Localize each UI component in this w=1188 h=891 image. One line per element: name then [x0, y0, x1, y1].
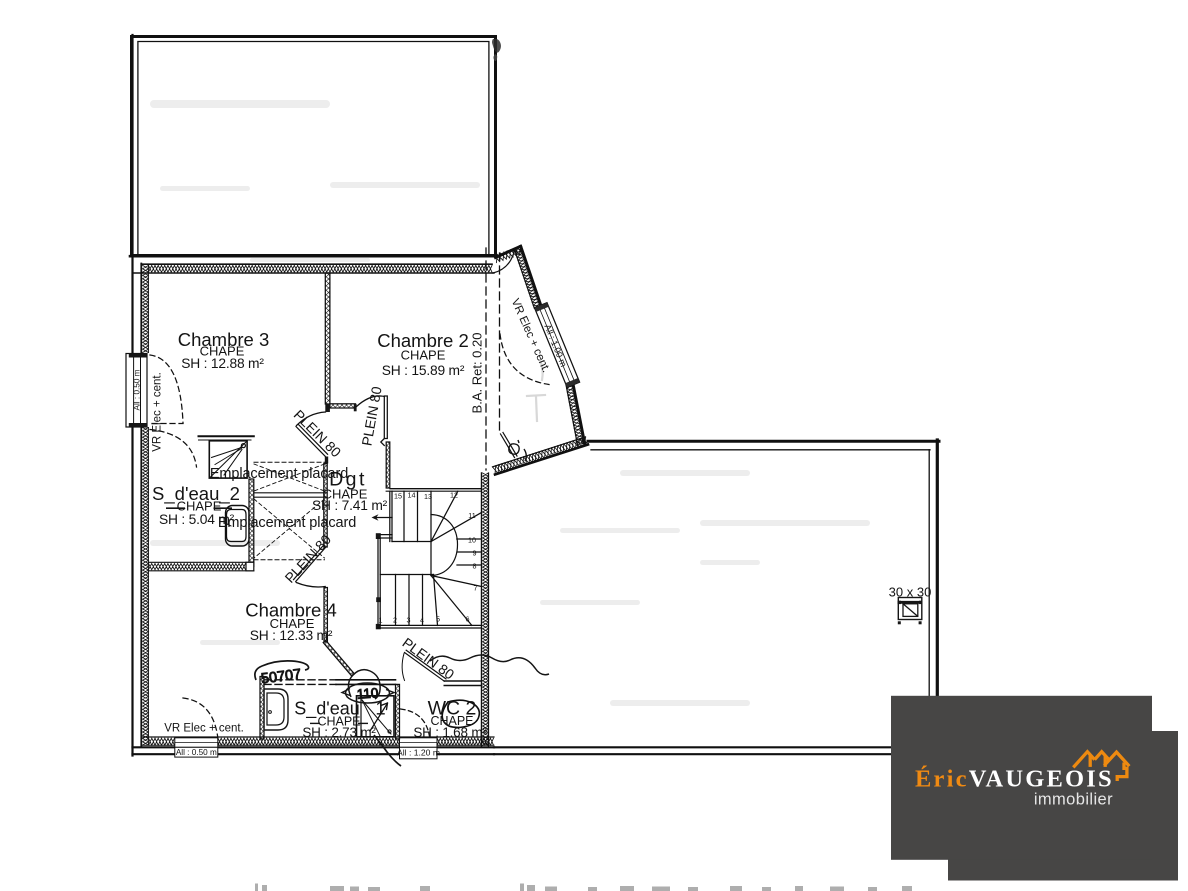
svg-text:5: 5: [436, 615, 440, 624]
svg-text:110: 110: [356, 685, 379, 701]
svg-text:13: 13: [424, 492, 432, 501]
svg-text:14: 14: [408, 491, 416, 500]
svg-text:10: 10: [468, 536, 476, 545]
svg-text:SH : 7.41 m²: SH : 7.41 m²: [312, 498, 388, 513]
svg-text:12: 12: [450, 491, 458, 500]
svg-text:All : 1.20 m: All : 1.20 m: [397, 748, 440, 758]
svg-text:SH : 15.89 m²: SH : 15.89 m²: [382, 363, 465, 378]
svg-text:1: 1: [379, 616, 383, 625]
svg-text:CHAPE: CHAPE: [401, 347, 446, 362]
svg-text:6: 6: [466, 615, 470, 624]
svg-text:9: 9: [473, 549, 477, 558]
svg-text:All : 0.50 m: All : 0.50 m: [176, 748, 217, 757]
svg-text:ÉricVAUGEOIS: ÉricVAUGEOIS: [915, 765, 1114, 793]
svg-text:SH : 12.33 m²: SH : 12.33 m²: [250, 628, 333, 643]
svg-text:Emplacement placard: Emplacement placard: [210, 466, 348, 482]
svg-text:VR Elec + cent.: VR Elec + cent.: [164, 723, 244, 735]
svg-text:Emplacement placard: Emplacement placard: [218, 515, 356, 531]
svg-text:B.A. Ret: 0.20: B.A. Ret: 0.20: [470, 333, 485, 414]
svg-text:15: 15: [394, 492, 402, 501]
svg-text:7: 7: [474, 584, 478, 593]
svg-text:11: 11: [468, 511, 475, 520]
svg-text:SH : 2.73 m²: SH : 2.73 m²: [302, 725, 376, 740]
svg-text:3: 3: [407, 616, 411, 625]
svg-text:2: 2: [393, 616, 397, 625]
svg-text:immobilier: immobilier: [1034, 791, 1113, 809]
svg-text:SH : 12.88 m²: SH : 12.88 m²: [181, 356, 264, 371]
svg-text:4: 4: [420, 616, 424, 625]
svg-text:8: 8: [473, 562, 477, 571]
svg-text:All : 0.50 m: All : 0.50 m: [132, 369, 141, 410]
svg-text:VR Elec + cent.: VR Elec + cent.: [152, 372, 164, 452]
svg-text:SH : 1.68 m²: SH : 1.68 m²: [413, 725, 487, 740]
